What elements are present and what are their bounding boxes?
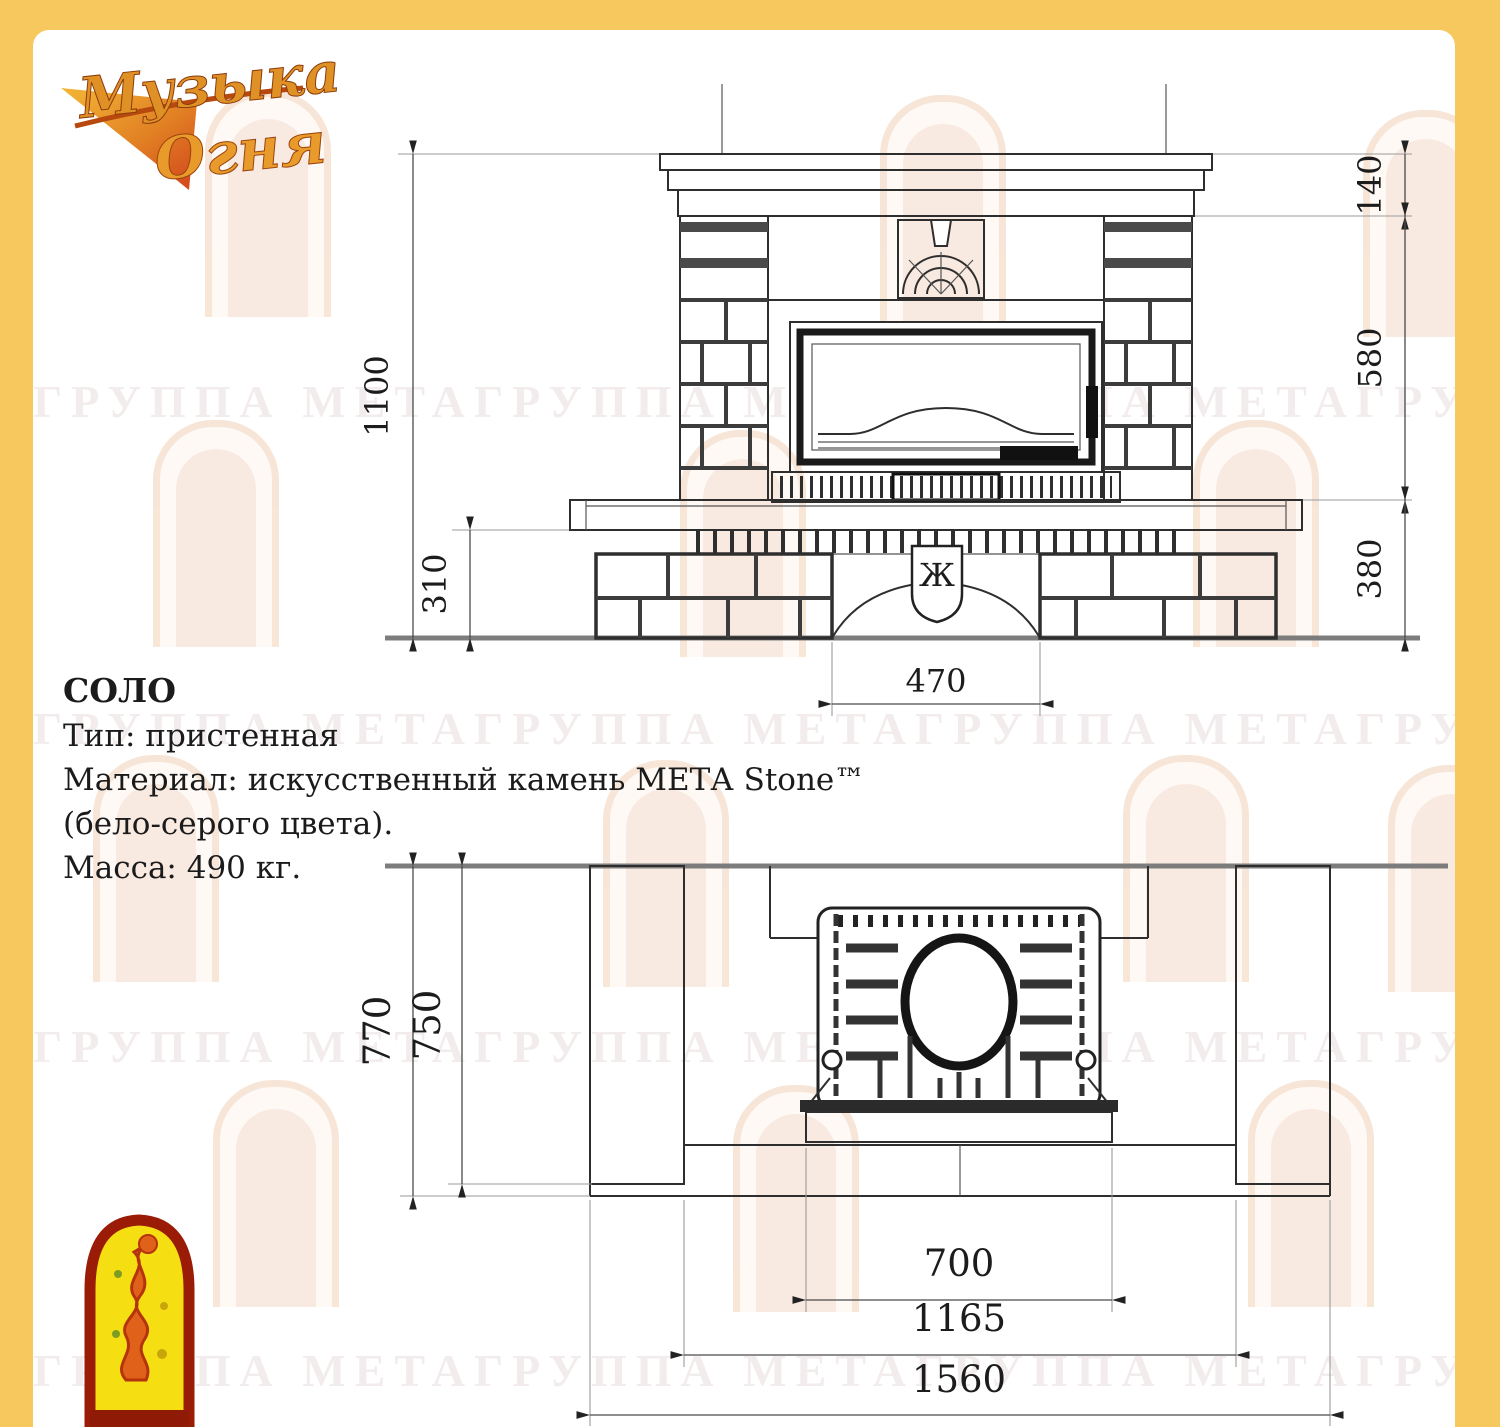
- svg-text:310: 310: [416, 553, 454, 614]
- dim-total-width: 1560: [590, 1358, 1330, 1415]
- svg-text:700: 700: [924, 1242, 995, 1285]
- base-right-block: [1040, 554, 1276, 638]
- dim-total-height: 1100: [358, 154, 413, 638]
- flue-opening: [905, 938, 1013, 1066]
- right-pilaster-lattice: [1104, 300, 1192, 468]
- watermark-arch: [153, 420, 279, 647]
- product-material-2: (бело-серого цвета).: [63, 802, 865, 846]
- dim-inner-width: 1165: [684, 1297, 1236, 1355]
- firebox: [790, 322, 1102, 472]
- emblem-letter: Ж: [919, 556, 955, 594]
- product-type: Тип: пристенная: [63, 714, 865, 758]
- watermark-arch: [213, 1080, 339, 1307]
- svg-text:770: 770: [356, 996, 399, 1067]
- vent-grille: [772, 472, 1120, 502]
- hearth-shelf: [570, 500, 1302, 530]
- product-name: СОЛО: [63, 668, 865, 714]
- dim-base-height: 380: [1351, 500, 1405, 638]
- firebox-handle: [1086, 386, 1098, 438]
- svg-text:380: 380: [1351, 538, 1389, 599]
- left-pilaster-lattice: [680, 300, 768, 468]
- svg-text:750: 750: [406, 990, 449, 1061]
- meta-arch-logo: [82, 1212, 197, 1427]
- svg-text:470: 470: [905, 662, 966, 700]
- plan-view-drawing: 770 750 700 1165 1560: [380, 850, 1455, 1427]
- product-material-1: Материал: искусственный камень МЕТА Ston…: [63, 758, 865, 802]
- dim-crown-height: 140: [1351, 154, 1405, 216]
- front-view-drawing: Ж 1100 310 140 580 380 470: [360, 75, 1445, 705]
- firebox-insert-plan: [800, 908, 1118, 1142]
- dim-column-depth: 750: [406, 866, 462, 1184]
- dim-insert-width: 700: [806, 1242, 1112, 1300]
- dim-hearth-height: 310: [416, 530, 470, 638]
- fan-ornament: [898, 220, 984, 298]
- music-of-fire-logo: Музыка Огня: [45, 28, 325, 203]
- page-frame: ГРУППА МЕТАГРУППА МЕТАГРУППА МЕТАГРУППА …: [0, 0, 1500, 1427]
- svg-text:580: 580: [1351, 327, 1389, 388]
- ash-lip: [1000, 446, 1078, 460]
- svg-text:140: 140: [1351, 154, 1389, 215]
- dim-middle-height: 580: [1351, 216, 1405, 500]
- svg-text:1560: 1560: [912, 1358, 1006, 1401]
- emblem-shield: Ж: [912, 546, 962, 622]
- base-left-block: [596, 554, 832, 638]
- svg-text:1100: 1100: [358, 355, 396, 436]
- svg-text:1165: 1165: [912, 1297, 1006, 1340]
